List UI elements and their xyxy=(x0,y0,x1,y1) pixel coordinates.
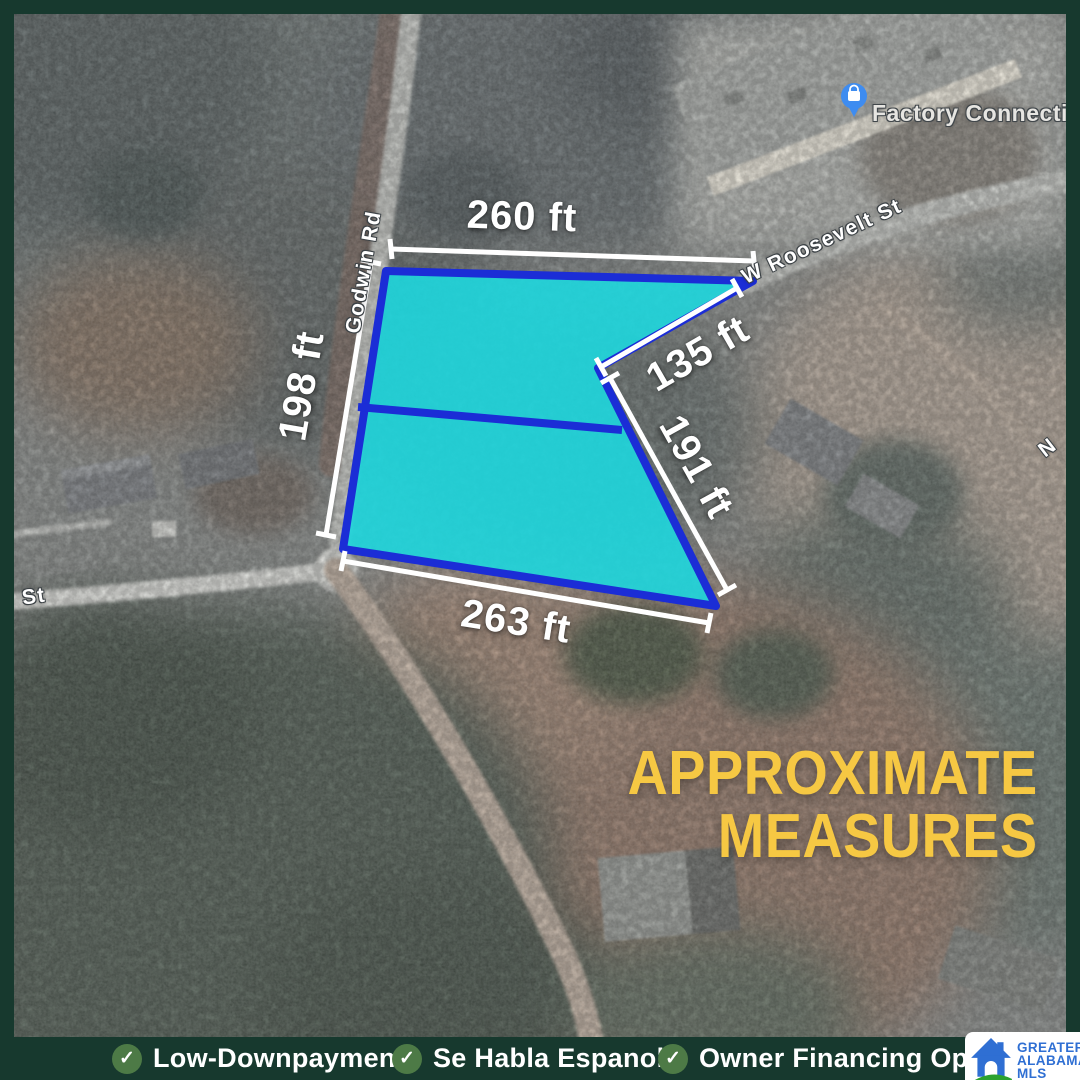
approximate-measures-watermark: APPROXIMATE MEASURES xyxy=(628,742,1038,868)
footer-item-se-habla-espanol: ✓ Se Habla Espanol xyxy=(392,1037,664,1080)
checkmark-icon: ✓ xyxy=(392,1044,422,1074)
mls-logo-text: GREATER ALABAMA MLS xyxy=(1017,1041,1080,1080)
watermark-line1: APPROXIMATE xyxy=(628,742,1038,805)
checkmark-icon: ✓ xyxy=(112,1044,142,1074)
poi-label-factory-connection: Factory Connection xyxy=(872,100,1066,127)
footer-item-label: Se Habla Espanol xyxy=(433,1043,664,1074)
street-label-st-partial: St xyxy=(20,583,47,610)
watermark-line2: MEASURES xyxy=(628,805,1038,868)
mls-logo-line2: ALABAMA xyxy=(1017,1054,1080,1067)
footer-item-label: Low-Downpayment xyxy=(153,1043,405,1074)
mls-logo-line1: GREATER xyxy=(1017,1041,1080,1054)
greater-alabama-mls-logo: GREATER ALABAMA MLS xyxy=(965,1032,1080,1080)
satellite-map: Godwin Rd W Roosevelt St St N Factory Co… xyxy=(14,14,1066,1037)
footer-item-low-downpayment: ✓ Low-Downpayment xyxy=(112,1037,405,1080)
footer-bar: ✓ Low-Downpayment ✓ Se Habla Espanol ✓ O… xyxy=(0,1037,1080,1080)
mls-house-icon xyxy=(970,1037,1012,1080)
satellite-imagery xyxy=(14,14,1066,1037)
mls-logo-line3: MLS xyxy=(1017,1067,1080,1080)
checkmark-icon: ✓ xyxy=(658,1044,688,1074)
measurement-260ft: 260 ft xyxy=(466,193,578,242)
